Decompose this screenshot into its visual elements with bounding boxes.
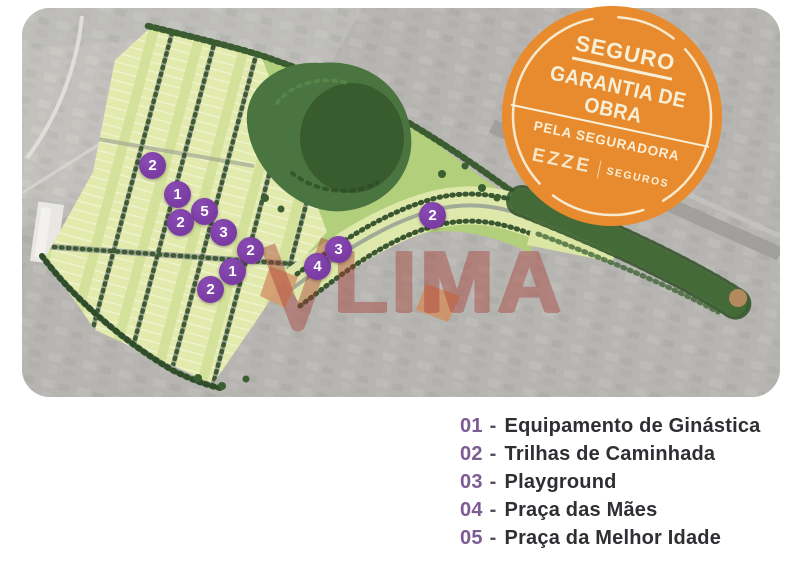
- legend-dash: -: [490, 415, 497, 438]
- legend-dash: -: [490, 527, 497, 550]
- legend-row: 04 - Praça das Mães: [460, 499, 761, 527]
- legend-number: 05: [460, 527, 483, 550]
- map-marker-2: 2: [167, 209, 194, 236]
- map-marker-2: 2: [419, 202, 446, 229]
- legend-dash: -: [490, 471, 497, 494]
- legend-dash: -: [490, 443, 497, 466]
- legend-label: Equipamento de Ginástica: [505, 415, 761, 438]
- legend-row: 05 - Praça da Melhor Idade: [460, 527, 761, 555]
- legend-number: 04: [460, 499, 483, 522]
- listing-image: LIMA 21523212432 SEGURO GARANTIA DE OBRA…: [0, 0, 800, 570]
- legend-row: 01 - Equipamento de Ginástica: [460, 415, 761, 443]
- legend-label: Praça da Melhor Idade: [505, 527, 722, 550]
- legend-label: Trilhas de Caminhada: [505, 443, 716, 466]
- map-marker-5: 5: [191, 198, 218, 225]
- amenities-legend: 01 - Equipamento de Ginástica 02 - Trilh…: [460, 415, 761, 555]
- map-marker-2: 2: [237, 237, 264, 264]
- map-marker-2: 2: [197, 276, 224, 303]
- legend-number: 02: [460, 443, 483, 466]
- legend-label: Praça das Mães: [505, 499, 658, 522]
- map-marker-2: 2: [139, 152, 166, 179]
- legend-label: Playground: [505, 471, 617, 494]
- map-marker-3: 3: [210, 219, 237, 246]
- legend-number: 03: [460, 471, 483, 494]
- map-marker-1: 1: [219, 258, 246, 285]
- map-marker-3: 3: [325, 236, 352, 263]
- map-marker-1: 1: [164, 181, 191, 208]
- legend-dash: -: [490, 499, 497, 522]
- legend-row: 03 - Playground: [460, 471, 761, 499]
- legend-number: 01: [460, 415, 483, 438]
- legend-row: 02 - Trilhas de Caminhada: [460, 443, 761, 471]
